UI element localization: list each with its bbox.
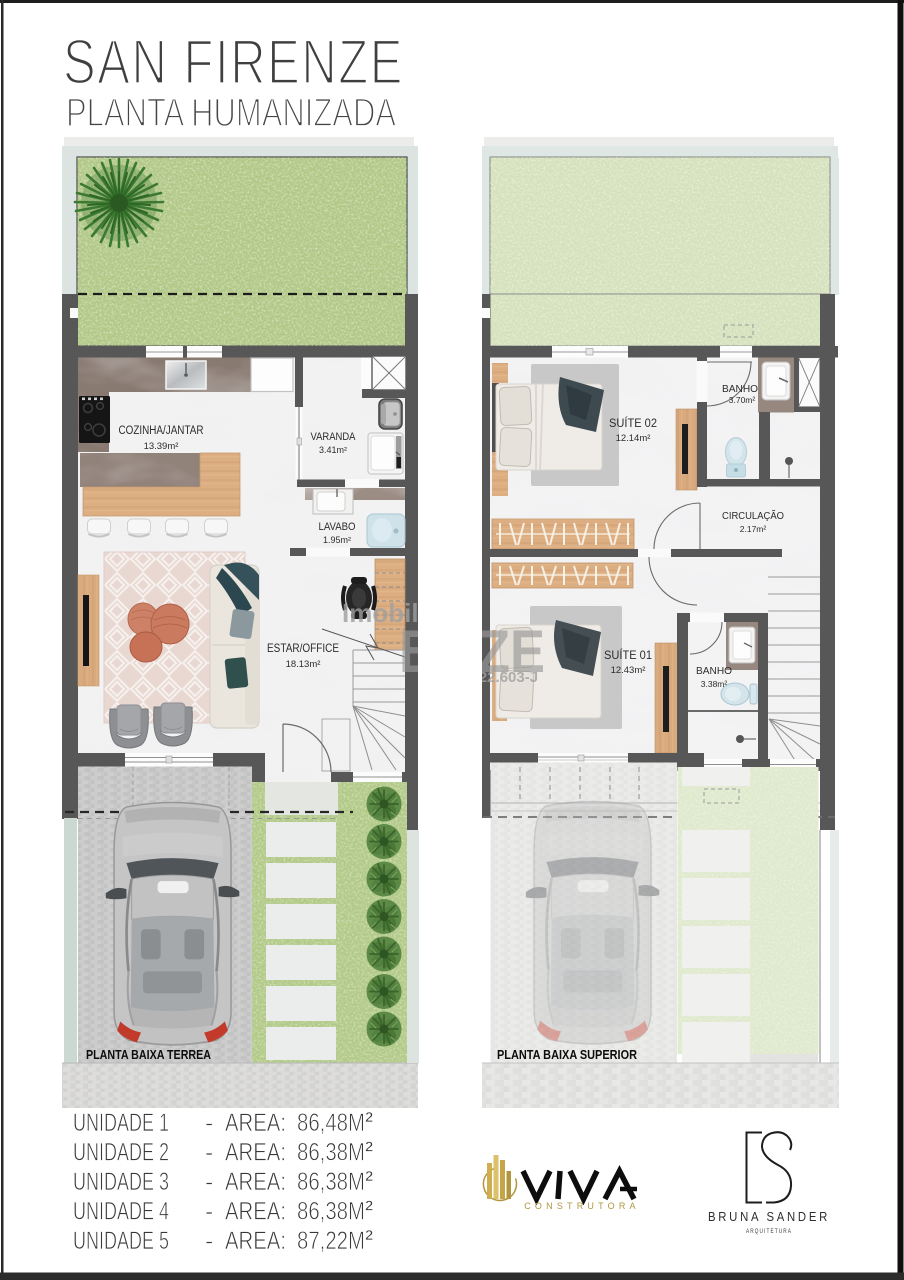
svg-text:AREA:: AREA: [225, 1198, 286, 1226]
svg-text:3.41m²: 3.41m² [319, 445, 347, 455]
svg-text:1.95m²: 1.95m² [323, 535, 351, 545]
svg-text:BANHO: BANHO [722, 383, 758, 395]
svg-text:ESTAR/OFFICE: ESTAR/OFFICE [267, 641, 339, 655]
svg-text:13.39m²: 13.39m² [144, 441, 179, 452]
svg-text:86,38M: 86,38M [297, 1198, 365, 1226]
svg-text:AREA:: AREA: [225, 1109, 286, 1137]
svg-text:86,38M: 86,38M [297, 1139, 365, 1167]
svg-text:-: - [205, 1168, 213, 1196]
svg-text:ARQUITETURA: ARQUITETURA [746, 1228, 792, 1235]
svg-text:2.17m²: 2.17m² [740, 524, 767, 534]
svg-text:-: - [205, 1109, 213, 1137]
svg-text:SUÍTE 01: SUÍTE 01 [604, 649, 652, 662]
svg-text:2: 2 [365, 1198, 373, 1215]
svg-text:UNIDADE 3: UNIDADE 3 [73, 1168, 169, 1196]
svg-text:CONSTRUTORA: CONSTRUTORA [524, 1201, 640, 1211]
svg-text:PLANTA BAIXA SUPERIOR: PLANTA BAIXA SUPERIOR [497, 1047, 638, 1062]
svg-text:2: 2 [365, 1168, 373, 1185]
svg-text:PLANTA BAIXA TERREA: PLANTA BAIXA TERREA [86, 1047, 212, 1062]
svg-text:12.14m²: 12.14m² [616, 433, 651, 444]
svg-text:UNIDADE 1: UNIDADE 1 [73, 1109, 169, 1137]
svg-text:-: - [205, 1198, 213, 1226]
svg-text:SUÍTE 02: SUÍTE 02 [609, 417, 657, 430]
svg-text:2: 2 [365, 1227, 373, 1244]
svg-text:SAN FIRENZE: SAN FIRENZE [63, 28, 404, 98]
svg-text:3.70m²: 3.70m² [729, 395, 756, 405]
svg-text:AREA:: AREA: [225, 1168, 286, 1196]
svg-text:BANHO: BANHO [696, 665, 732, 677]
svg-text:PLANTA HUMANIZADA: PLANTA HUMANIZADA [66, 91, 396, 135]
svg-text:AREA:: AREA: [225, 1227, 286, 1255]
svg-text:2: 2 [365, 1109, 373, 1126]
svg-text:-: - [205, 1227, 213, 1255]
svg-text:86,38M: 86,38M [297, 1168, 365, 1196]
svg-text:-: - [205, 1139, 213, 1167]
svg-text:UNIDADE 5: UNIDADE 5 [73, 1227, 169, 1255]
svg-text:AREA:: AREA: [225, 1139, 286, 1167]
svg-text:LAVABO: LAVABO [319, 521, 356, 533]
svg-text:86,48M: 86,48M [297, 1109, 365, 1137]
svg-text:87,22M: 87,22M [297, 1227, 365, 1255]
svg-text:CIRCULAÇÃO: CIRCULAÇÃO [722, 509, 784, 522]
svg-text:2: 2 [365, 1139, 373, 1156]
svg-text:18.13m²: 18.13m² [286, 659, 321, 670]
svg-text:UNIDADE 2: UNIDADE 2 [73, 1139, 169, 1167]
svg-text:BRUNA SANDER: BRUNA SANDER [708, 1210, 830, 1224]
svg-text:VARANDA: VARANDA [311, 431, 357, 443]
svg-text:COZINHA/JANTAR: COZINHA/JANTAR [119, 425, 204, 437]
svg-text:UNIDADE 4: UNIDADE 4 [73, 1198, 169, 1226]
svg-text:12.43m²: 12.43m² [611, 665, 646, 676]
